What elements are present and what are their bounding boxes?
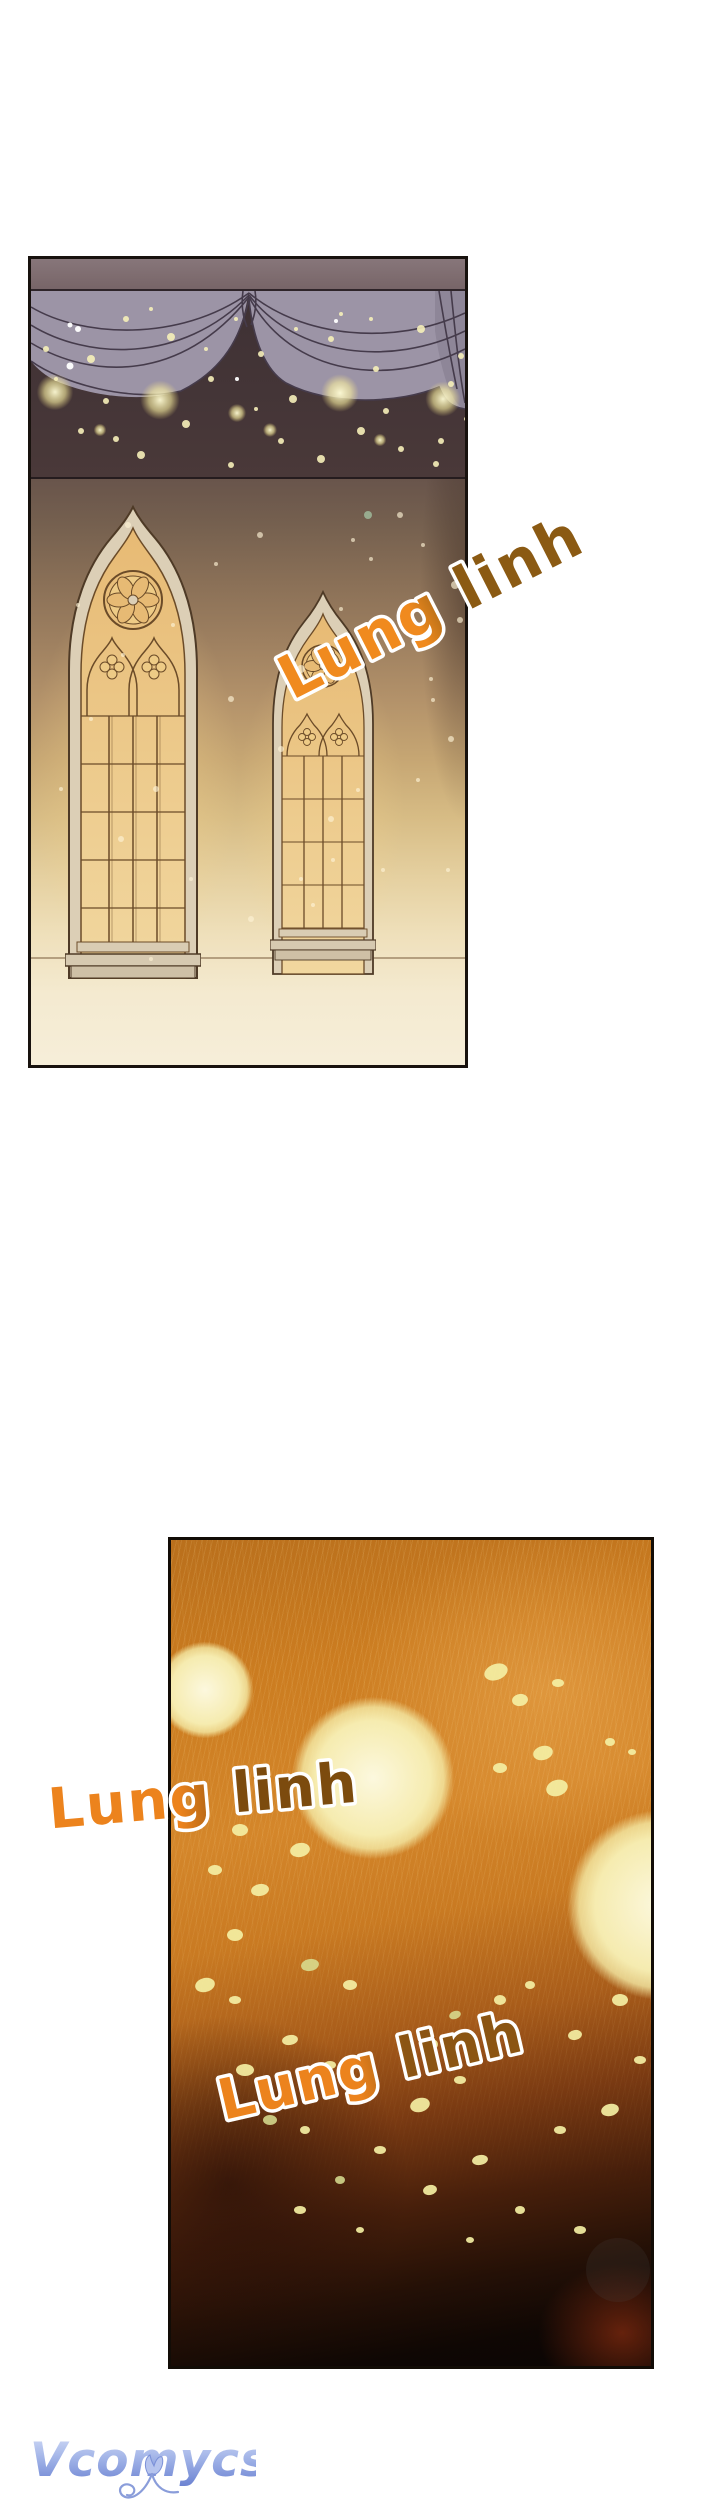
caption-lung-linh-2: Lung linh xyxy=(35,1720,375,1900)
caption-text: Lung linh xyxy=(267,501,595,714)
caption-lung-linh-1: Lung linh xyxy=(270,495,610,735)
panel-bokeh-lights xyxy=(168,1537,654,2369)
comic-page: Lung linh Lung linh Lung linh Vcomycs xyxy=(0,0,720,2508)
bokeh-orbs-overlay xyxy=(171,1540,651,2366)
caption-lung-linh-3: Lung linh xyxy=(200,1995,550,2165)
watermark-text: Vcomycs xyxy=(30,2433,256,2488)
caption-text: Lung linh xyxy=(46,1751,362,1843)
watermark-vcomycs: Vcomycs xyxy=(26,2424,256,2506)
caption-text: Lung linh xyxy=(212,2000,530,2133)
